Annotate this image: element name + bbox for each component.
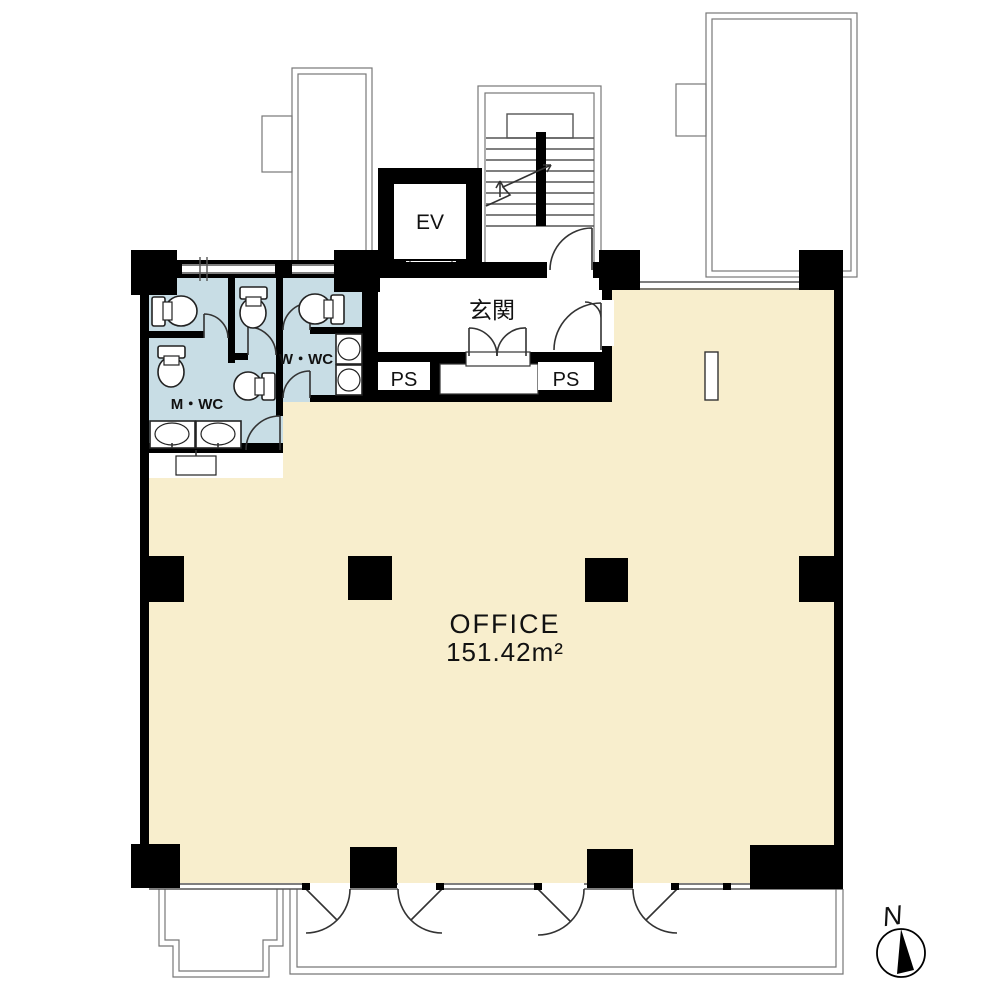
compass-needle <box>897 929 914 974</box>
womens-wc-label: W・WC <box>279 351 333 368</box>
hand-wash-basin <box>176 450 216 475</box>
pillar <box>705 352 718 400</box>
sink <box>336 334 362 395</box>
door-hinge <box>723 883 731 890</box>
facade-doors <box>302 883 731 935</box>
column <box>131 844 180 888</box>
toilet <box>240 287 267 328</box>
column <box>348 556 392 600</box>
stair-door <box>547 228 593 278</box>
compass: N <box>877 900 925 977</box>
elevator-label: EV <box>416 211 444 234</box>
door-hinge <box>534 883 542 890</box>
column <box>750 845 843 889</box>
column <box>350 847 397 888</box>
column <box>799 250 843 290</box>
bay-outline-bottom-left <box>159 889 283 977</box>
door-hinge <box>436 883 444 890</box>
window-bottom <box>149 884 843 889</box>
door-hinge <box>302 883 310 890</box>
stair-center-wall <box>536 132 546 226</box>
column <box>140 556 184 602</box>
column <box>799 556 843 602</box>
door-hinge <box>671 883 679 890</box>
sink <box>150 421 241 448</box>
equipment-box <box>440 364 538 394</box>
upper-floor-outline-top-right <box>676 13 857 277</box>
column <box>587 849 633 888</box>
toilet <box>152 296 197 326</box>
entrance-double-door <box>466 328 530 366</box>
floor-plan-drawing: EV 玄関 PS PS W・WC M・WC OFFICE 151.42m² N <box>0 0 1000 1000</box>
office-area-label: 151.42m² <box>446 637 564 667</box>
toilet <box>299 294 344 324</box>
stairwell <box>478 86 601 270</box>
toilet <box>234 372 275 400</box>
upper-floor-outline-top-left <box>262 68 372 273</box>
toilet <box>158 346 185 387</box>
mens-wc-label: M・WC <box>171 396 224 413</box>
office-label: OFFICE <box>450 609 561 639</box>
column <box>585 558 628 602</box>
column <box>131 250 177 295</box>
entrance-office-door <box>554 300 614 350</box>
ps-right-label: PS <box>553 369 580 391</box>
floor-plan-page: EV 玄関 PS PS W・WC M・WC OFFICE 151.42m² N <box>0 0 1000 1000</box>
ps-left-label: PS <box>391 369 418 391</box>
entrance-label: 玄関 <box>469 297 515 323</box>
north-label: N <box>881 900 905 932</box>
balcony-outline <box>290 889 843 974</box>
